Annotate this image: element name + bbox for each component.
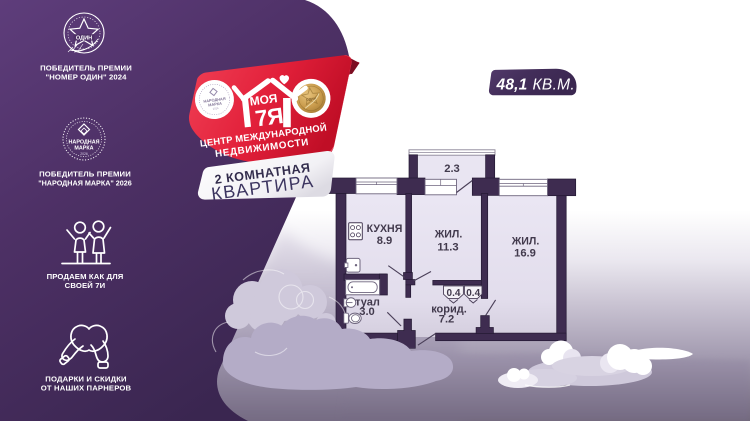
svg-text:ПОБЕДИТЕЛЬ ПРЕМИИ: ПОБЕДИТЕЛЬ ПРЕМИИ (39, 170, 131, 179)
svg-text:2026: 2026 (80, 152, 88, 156)
svg-text:СВОЕЙ 7И: СВОЕЙ 7И (65, 281, 106, 290)
svg-text:11.3: 11.3 (437, 242, 458, 254)
svg-text:2026: 2026 (212, 106, 219, 111)
svg-text:ПРОДАЕМ КАК ДЛЯ: ПРОДАЕМ КАК ДЛЯ (47, 272, 124, 281)
svg-text:48,1: 48,1 (496, 76, 528, 93)
svg-text:ОДИН: ОДИН (76, 35, 92, 41)
svg-text:0.4: 0.4 (447, 288, 461, 299)
svg-text:3.0: 3.0 (359, 306, 375, 318)
svg-text:ПОДАРКИ И СКИДКИ: ПОДАРКИ И СКИДКИ (45, 375, 127, 384)
svg-text:ЖИЛ.: ЖИЛ. (434, 229, 463, 241)
svg-text:0.4: 0.4 (466, 288, 480, 299)
svg-text:8.9: 8.9 (377, 235, 393, 247)
svg-text:16.9: 16.9 (514, 248, 536, 260)
svg-text:КВ.М.: КВ.М. (533, 76, 576, 93)
svg-text:"НАРОДНАЯ МАРКА" 2026: "НАРОДНАЯ МАРКА" 2026 (38, 179, 132, 188)
svg-text:КУХНЯ: КУХНЯ (367, 223, 403, 235)
svg-text:МАРКА: МАРКА (74, 146, 93, 152)
svg-text:"НОМЕР ОДИН" 2024: "НОМЕР ОДИН" 2024 (46, 73, 128, 82)
svg-text:ПОБЕДИТЕЛЬ ПРЕМИИ: ПОБЕДИТЕЛЬ ПРЕМИИ (40, 64, 132, 73)
svg-text:2.3: 2.3 (444, 163, 460, 175)
svg-text:7.2: 7.2 (439, 313, 455, 325)
svg-text:ОТ НАШИХ ПАРНЕРОВ: ОТ НАШИХ ПАРНЕРОВ (41, 384, 132, 393)
svg-text:ЖИЛ.: ЖИЛ. (511, 236, 540, 248)
